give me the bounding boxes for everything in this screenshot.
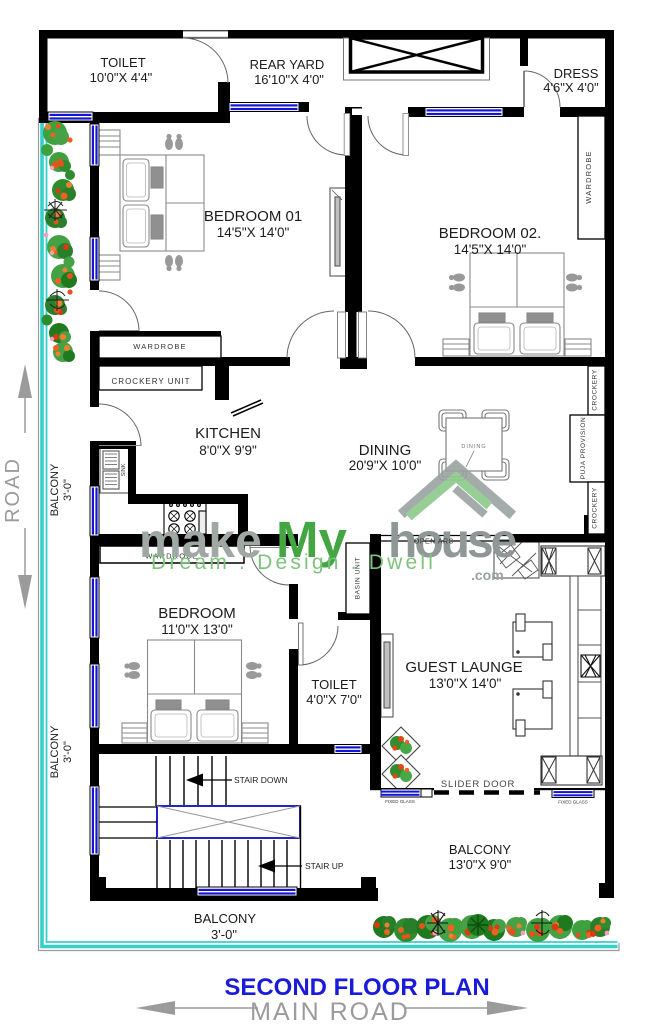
svg-text:10'0"X 4'4": 10'0"X 4'4" [90,70,153,85]
svg-text:3'-0": 3'-0" [211,927,237,942]
svg-text:4'0"X 7'0": 4'0"X 7'0" [306,692,362,707]
svg-text:FIXED GLASS: FIXED GLASS [385,799,415,804]
svg-text:ROAD: ROAD [2,457,24,523]
svg-text:WARDROBE: WARDROBE [133,342,187,351]
svg-text:8'0"X 9'9": 8'0"X 9'9" [199,443,257,458]
svg-text:FIXED GLASS: FIXED GLASS [558,800,588,805]
svg-text:BALCONY: BALCONY [49,725,61,778]
svg-text:SLIDER DOOR: SLIDER DOOR [441,779,515,790]
svg-text:BEDROOM: BEDROOM [158,605,236,622]
svg-text:14'5"X 14'0": 14'5"X 14'0" [454,242,527,257]
svg-text:BEDROOM 01: BEDROOM 01 [204,208,302,225]
svg-text:DRESS: DRESS [554,66,599,81]
svg-text:BALCONY: BALCONY [194,911,256,926]
svg-text:CROCKERY: CROCKERY [592,369,599,411]
svg-text:DINING: DINING [359,442,412,459]
svg-text:TOILET: TOILET [311,677,356,692]
svg-text:PUJA PROVISION: PUJA PROVISION [580,417,587,480]
svg-text:OPEN ARC: OPEN ARC [414,539,454,546]
svg-text:TOILET: TOILET [100,55,145,70]
svg-text:CROCKERY: CROCKERY [592,487,599,529]
svg-text:3'-0": 3'-0" [62,479,74,501]
svg-text:BALCONY: BALCONY [449,842,511,857]
svg-text:16'10"X 4'0": 16'10"X 4'0" [254,72,324,87]
svg-text:CROCKERY UNIT: CROCKERY UNIT [112,377,191,386]
svg-text:SINK: SINK [121,463,127,476]
svg-text:4'6"X 4'0": 4'6"X 4'0" [543,80,599,95]
svg-text:11'0"X 13'0": 11'0"X 13'0" [161,622,233,637]
svg-text:MAIN ROAD: MAIN ROAD [250,998,410,1024]
svg-text:DINING: DINING [461,444,486,450]
svg-text:.com: .com [471,567,504,583]
svg-text:20'9"X 10'0": 20'9"X 10'0" [349,458,422,473]
svg-text:STAIR DOWN: STAIR DOWN [234,775,288,785]
svg-text:Dream . Design . Dwell: Dream . Design . Dwell [151,551,436,574]
svg-text:GUEST LAUNGE: GUEST LAUNGE [405,659,522,676]
svg-text:WARDROBE: WARDROBE [584,150,593,204]
svg-text:REAR YARD: REAR YARD [250,57,325,72]
svg-text:KITCHEN: KITCHEN [195,425,261,442]
svg-text:14'5"X 14'0": 14'5"X 14'0" [217,225,290,240]
svg-text:13'0"X 9'0": 13'0"X 9'0" [449,857,512,872]
svg-text:13'0"X 14'0": 13'0"X 14'0" [429,676,502,691]
svg-text:SECOND FLOOR PLAN: SECOND FLOOR PLAN [224,974,489,1001]
svg-text:3'-0": 3'-0" [62,741,74,763]
svg-text:BEDROOM 02.: BEDROOM 02. [439,225,542,242]
svg-text:STAIR UP: STAIR UP [305,861,344,871]
svg-text:BALCONY: BALCONY [49,463,61,516]
